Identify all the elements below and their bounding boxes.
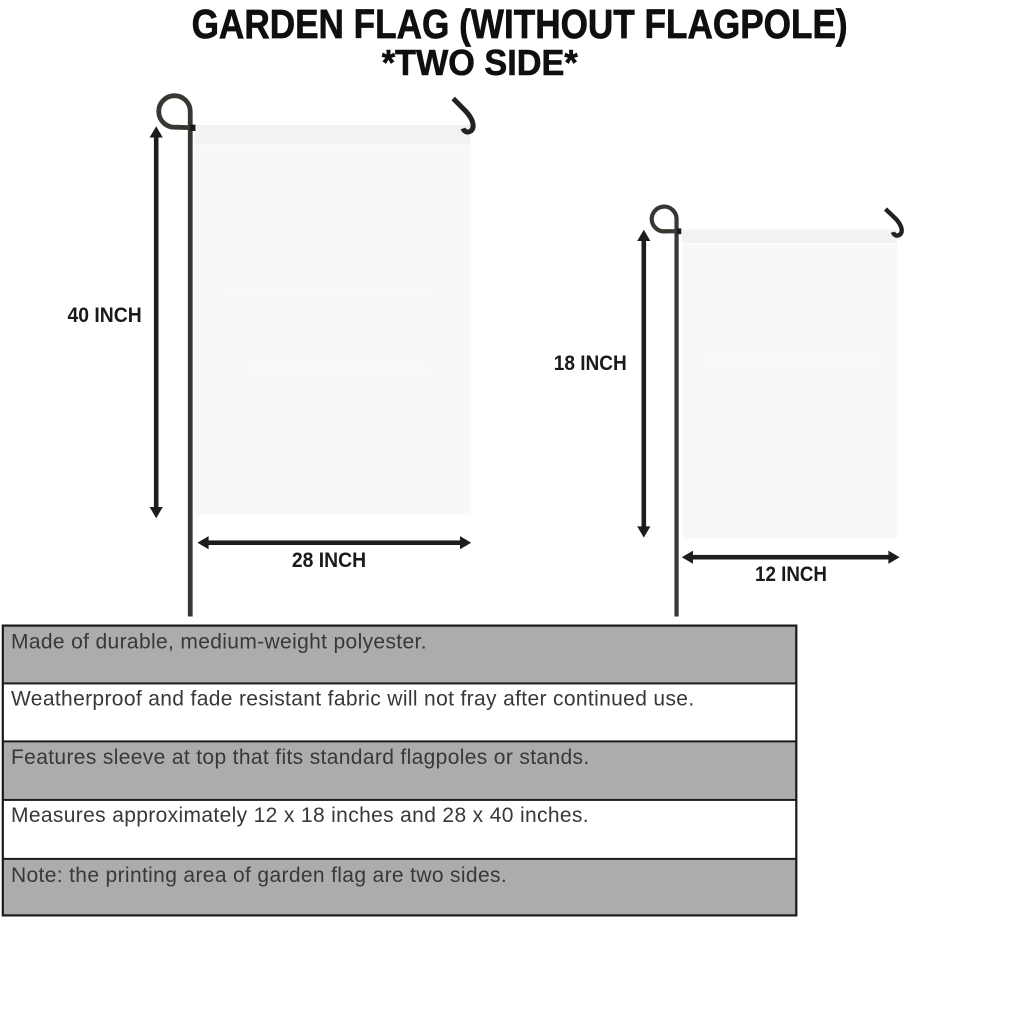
svg-text:12 INCH: 12 INCH	[755, 563, 827, 586]
svg-text:Weatherproof and fade resistan: Weatherproof and fade resistant fabric w…	[11, 687, 695, 710]
svg-text:Measures approximately 12 x 18: Measures approximately 12 x 18 inches an…	[11, 804, 589, 827]
svg-text:Features sleeve at top that fi: Features sleeve at top that fits standar…	[11, 746, 590, 769]
svg-text:18 INCH: 18 INCH	[554, 352, 627, 375]
svg-text:28 INCH: 28 INCH	[292, 549, 366, 572]
svg-text:*TWO SIDE*: *TWO SIDE*	[382, 42, 578, 83]
svg-text:40 INCH: 40 INCH	[68, 304, 142, 327]
svg-text:Made of durable, medium-weight: Made of durable, medium-weight polyester…	[11, 630, 427, 653]
svg-text:Note: the printing area of gar: Note: the printing area of garden flag a…	[11, 864, 507, 887]
svg-text:GARDEN FLAG (WITHOUT FLAGPOLE): GARDEN FLAG (WITHOUT FLAGPOLE)	[192, 1, 848, 47]
